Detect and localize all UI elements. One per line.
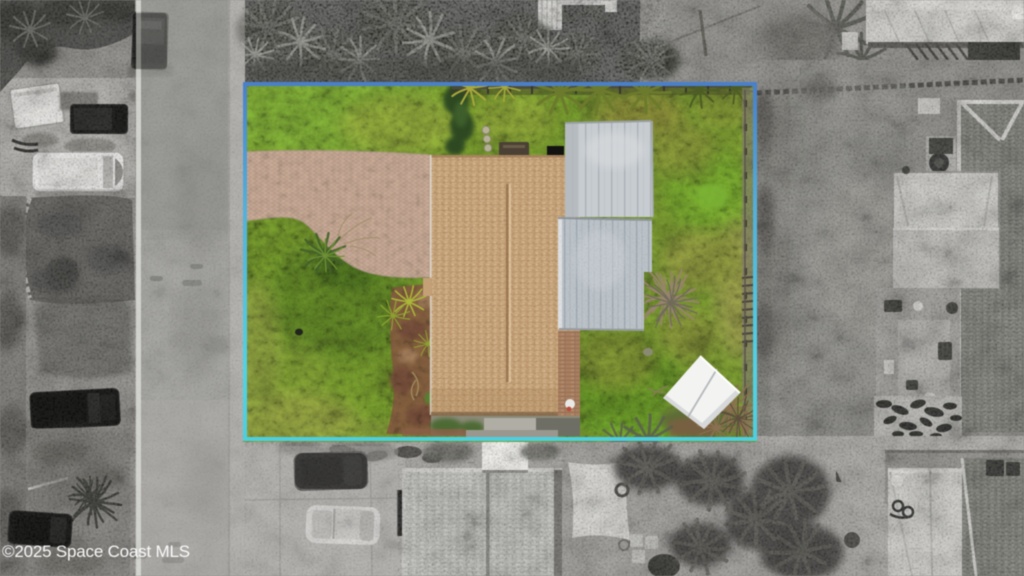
svg-text:©2025 Space Coast MLS: ©2025 Space Coast MLS [2, 542, 190, 561]
